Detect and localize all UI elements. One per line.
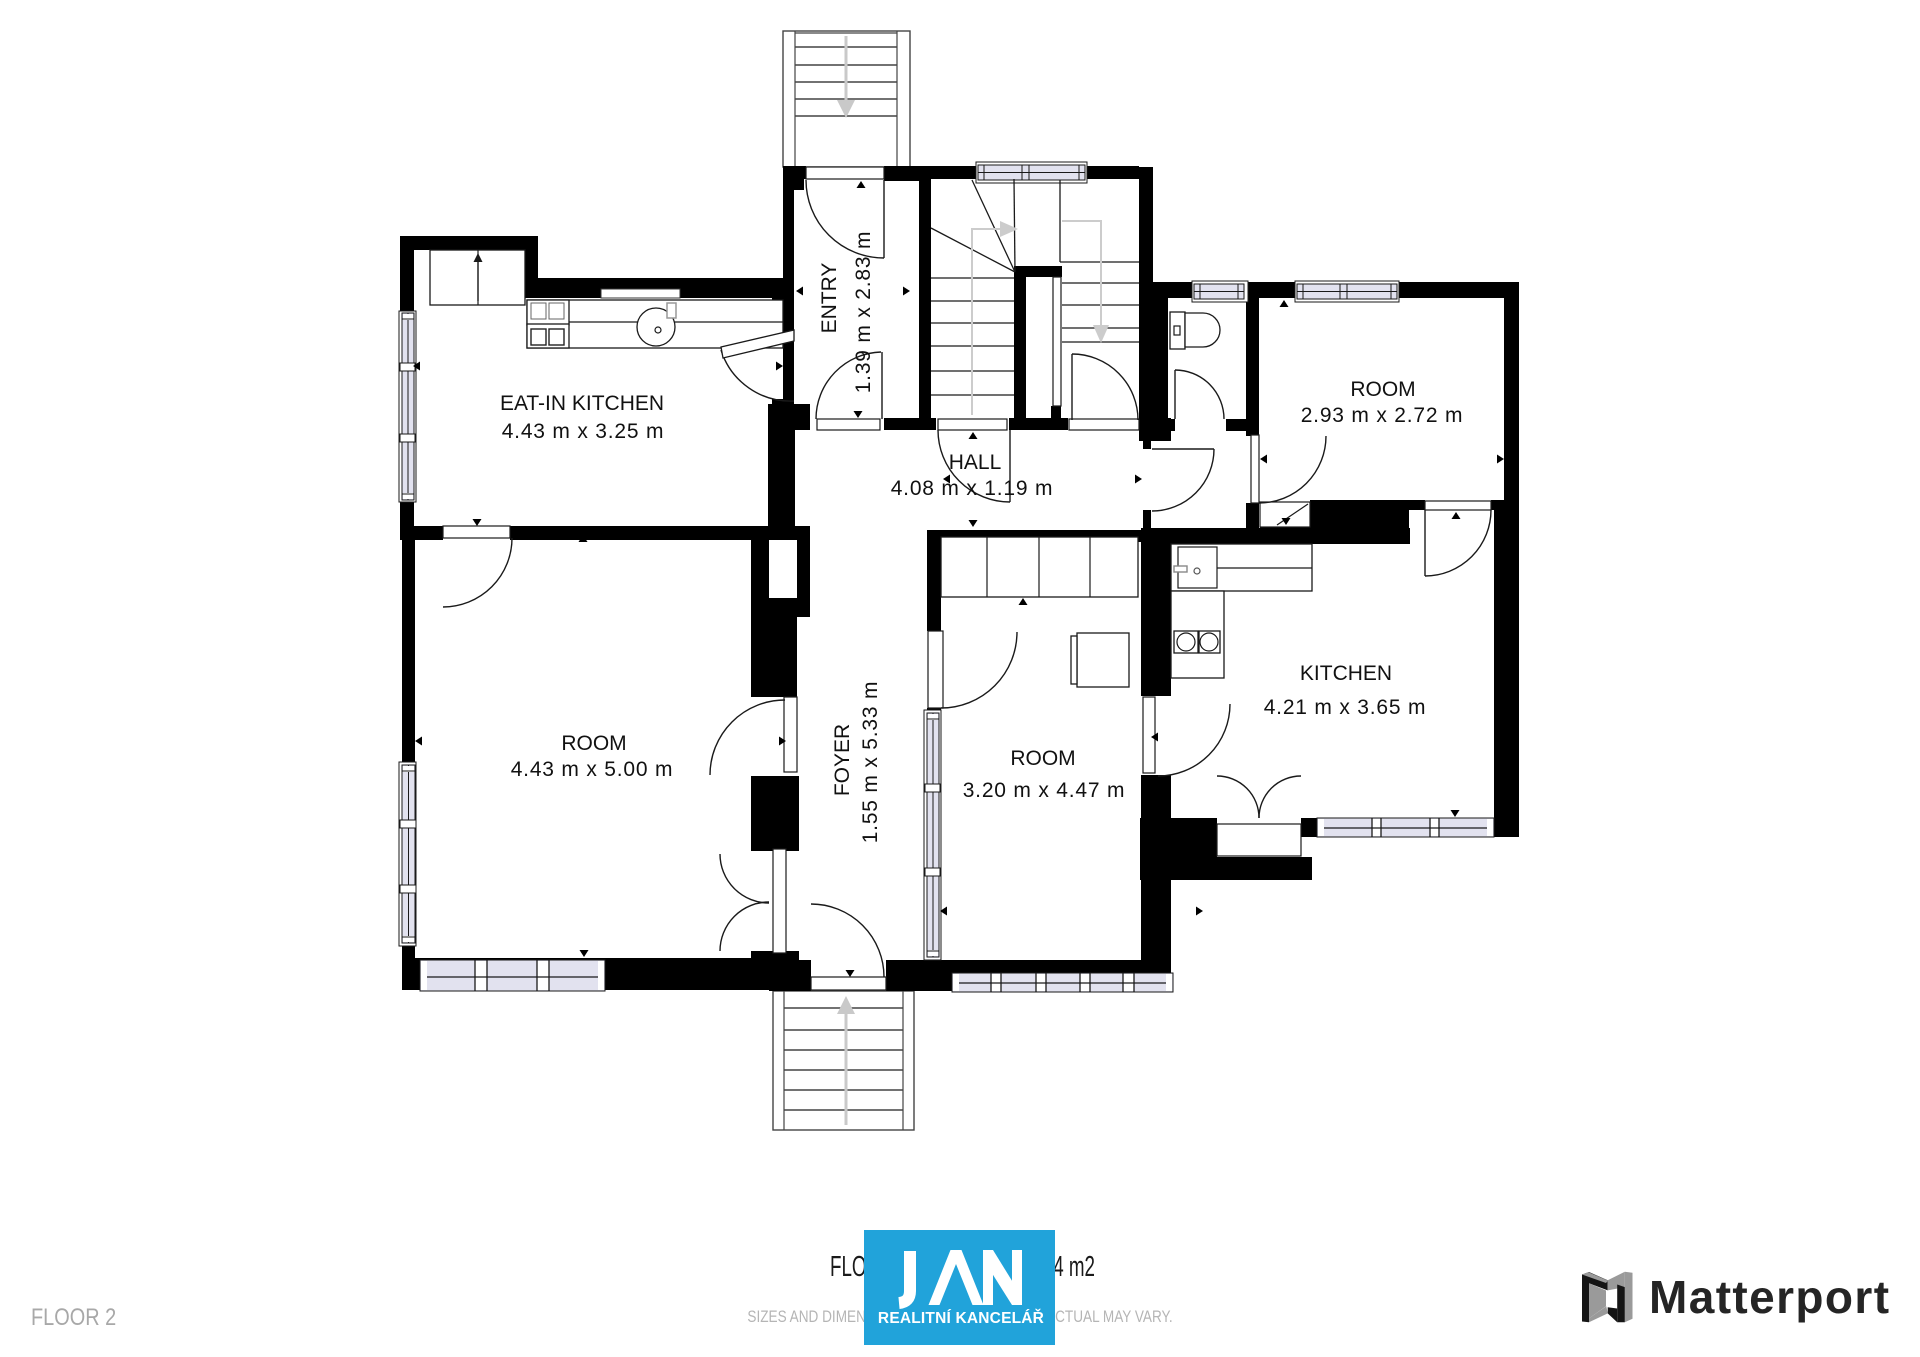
svg-text:1.39 m x 2.83 m: 1.39 m x 2.83 m — [852, 231, 875, 394]
svg-text:FLOOR 2: FLOOR 2 — [31, 1303, 116, 1330]
svg-text:2.93 m x 2.72 m: 2.93 m x 2.72 m — [1301, 404, 1464, 427]
svg-text:4.21 m x 3.65 m: 4.21 m x 3.65 m — [1264, 696, 1427, 719]
svg-text:ROOM: ROOM — [1010, 747, 1075, 770]
svg-text:3.20 m x 4.47 m: 3.20 m x 4.47 m — [963, 779, 1126, 802]
svg-text:FOYER: FOYER — [831, 724, 854, 796]
svg-text:4.43 m x 3.25 m: 4.43 m x 3.25 m — [502, 420, 665, 443]
svg-text:4.08 m x 1.19 m: 4.08 m x 1.19 m — [891, 477, 1054, 500]
svg-text:4.43 m x 5.00 m: 4.43 m x 5.00 m — [511, 758, 674, 781]
svg-text:1.55 m x 5.33 m: 1.55 m x 5.33 m — [859, 681, 882, 844]
svg-text:4 m2: 4 m2 — [1053, 1251, 1095, 1283]
svg-text:HALL: HALL — [949, 451, 1002, 474]
svg-text:EAT-IN KITCHEN: EAT-IN KITCHEN — [500, 392, 664, 415]
svg-text:KITCHEN: KITCHEN — [1300, 662, 1392, 685]
svg-text:ROOM: ROOM — [561, 732, 626, 755]
svg-text:Matterport: Matterport — [1649, 1271, 1890, 1323]
svg-text:REALITNÍ KANCELÁŘ: REALITNÍ KANCELÁŘ — [878, 1309, 1044, 1327]
svg-text:ROOM: ROOM — [1350, 378, 1415, 401]
svg-text:ENTRY: ENTRY — [818, 263, 841, 334]
